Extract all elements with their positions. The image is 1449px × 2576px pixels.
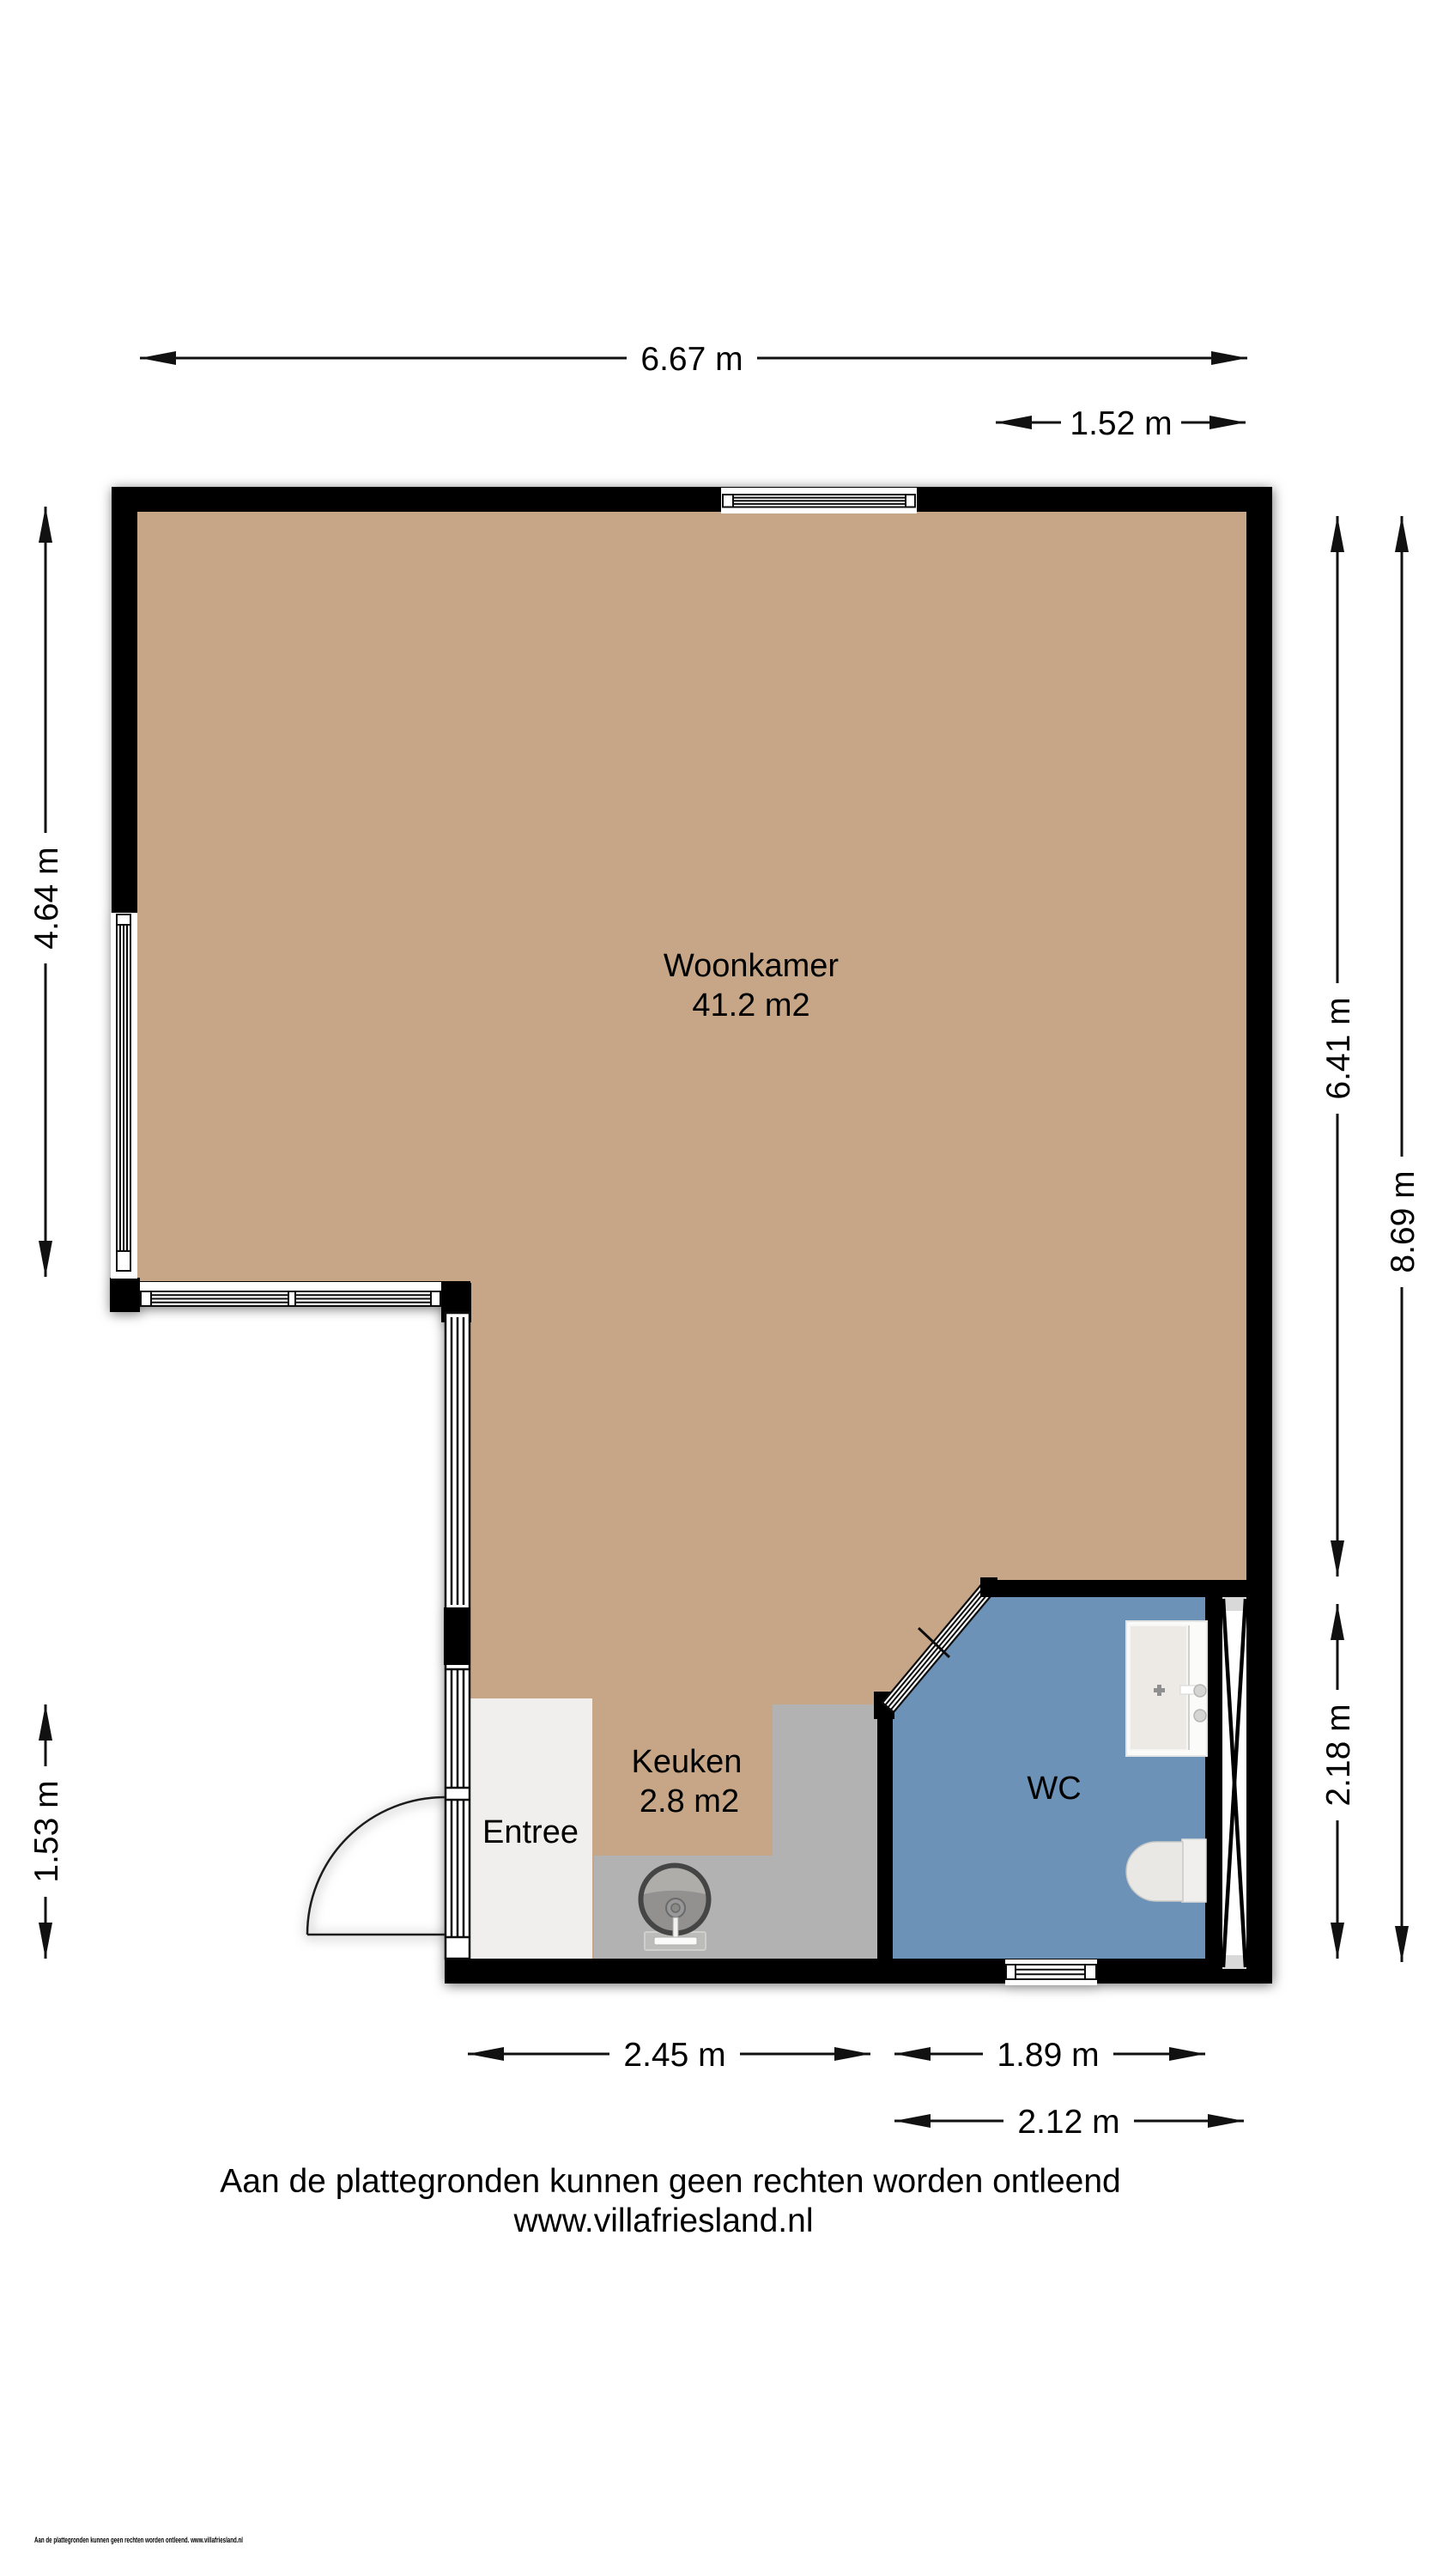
svg-text:2.45 m: 2.45 m — [623, 2037, 725, 2074]
svg-text:www.villafriesland.nl: www.villafriesland.nl — [513, 2202, 814, 2239]
svg-text:2.18 m: 2.18 m — [1320, 1704, 1357, 1806]
svg-text:6.41 m: 6.41 m — [1320, 997, 1357, 1099]
svg-text:1.89 m: 1.89 m — [997, 2037, 1099, 2074]
svg-text:Aan de plattegronden kunnen ge: Aan de plattegronden kunnen geen rechten… — [220, 2163, 1121, 2200]
svg-text:1.52 m: 1.52 m — [1070, 405, 1172, 442]
svg-text:2.12 m: 2.12 m — [1017, 2104, 1119, 2141]
svg-text:2.8 m2: 2.8 m2 — [640, 1783, 739, 1820]
svg-text:Aan de plattegronden kunnen ge: Aan de plattegronden kunnen geen rechten… — [34, 2536, 243, 2544]
svg-text:1.53 m: 1.53 m — [28, 1780, 65, 1882]
svg-text:6.67 m: 6.67 m — [640, 341, 743, 378]
svg-text:Woonkamer: Woonkamer — [664, 948, 840, 984]
svg-text:WC: WC — [1027, 1771, 1081, 1807]
svg-text:Entree: Entree — [482, 1814, 579, 1850]
svg-text:4.64 m: 4.64 m — [28, 847, 65, 949]
svg-text:Keuken: Keuken — [632, 1744, 743, 1780]
svg-text:8.69 m: 8.69 m — [1385, 1170, 1422, 1273]
svg-text:41.2 m2: 41.2 m2 — [692, 987, 809, 1024]
